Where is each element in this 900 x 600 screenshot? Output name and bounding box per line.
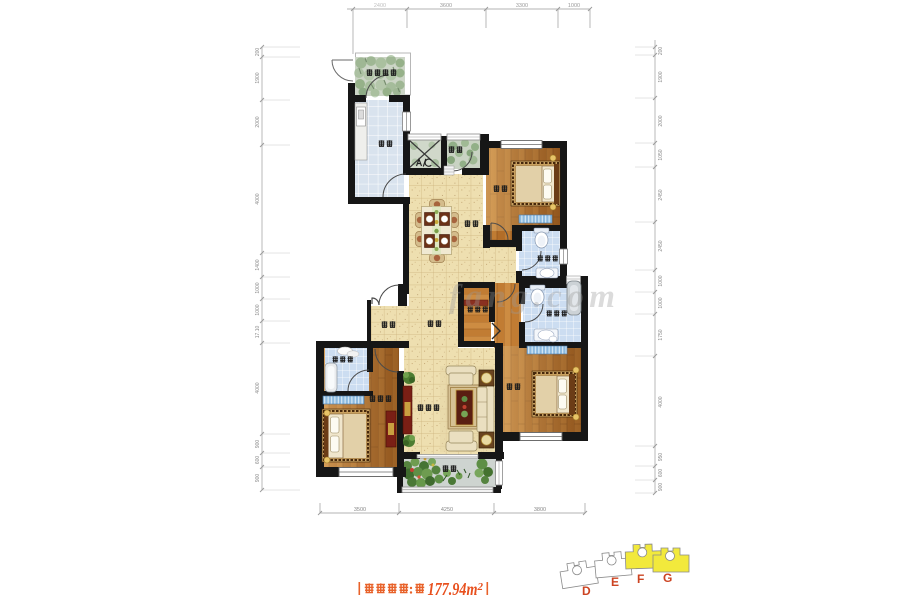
svg-text:3600: 3600 — [440, 3, 452, 9]
svg-text:1750: 1750 — [658, 329, 664, 340]
svg-text:200: 200 — [255, 48, 261, 57]
svg-text:900: 900 — [658, 483, 664, 492]
svg-text:3800: 3800 — [534, 507, 546, 513]
svg-text:3500: 3500 — [354, 507, 366, 513]
svg-text:950: 950 — [658, 453, 664, 462]
svg-text:2000: 2000 — [255, 116, 261, 127]
svg-text:177.94m2: 177.94m2 — [428, 579, 484, 599]
svg-text:2450: 2450 — [658, 189, 664, 200]
svg-text:1000: 1000 — [568, 3, 580, 9]
svg-text:600: 600 — [658, 469, 664, 478]
svg-text:E: E — [611, 575, 619, 589]
svg-text:900: 900 — [255, 440, 261, 449]
svg-text:fang.com: fang.com — [449, 279, 620, 315]
svg-text:1900: 1900 — [658, 71, 664, 82]
svg-text:2450: 2450 — [658, 240, 664, 251]
svg-text:D: D — [582, 584, 591, 598]
svg-text:1400: 1400 — [255, 259, 261, 270]
svg-text:1000: 1000 — [255, 304, 261, 315]
svg-text:600: 600 — [255, 456, 261, 465]
svg-text:2400: 2400 — [374, 3, 386, 9]
svg-text:G: G — [663, 571, 672, 585]
svg-text:1900: 1900 — [255, 72, 261, 83]
svg-text:4000: 4000 — [658, 396, 664, 407]
svg-text:900: 900 — [255, 474, 261, 483]
svg-text:4000: 4000 — [255, 382, 261, 393]
svg-text:1000: 1000 — [658, 275, 664, 286]
svg-text:200: 200 — [658, 47, 664, 56]
svg-text:2000: 2000 — [658, 115, 664, 126]
svg-text:4250: 4250 — [441, 507, 453, 513]
svg-text:4000: 4000 — [255, 193, 261, 204]
svg-text:1050: 1050 — [658, 149, 664, 160]
svg-text:1000: 1000 — [658, 297, 664, 308]
svg-text:3300: 3300 — [516, 3, 528, 9]
svg-text:17.10: 17.10 — [255, 326, 261, 339]
svg-text:1000: 1000 — [255, 282, 261, 293]
svg-text:F: F — [637, 572, 644, 586]
